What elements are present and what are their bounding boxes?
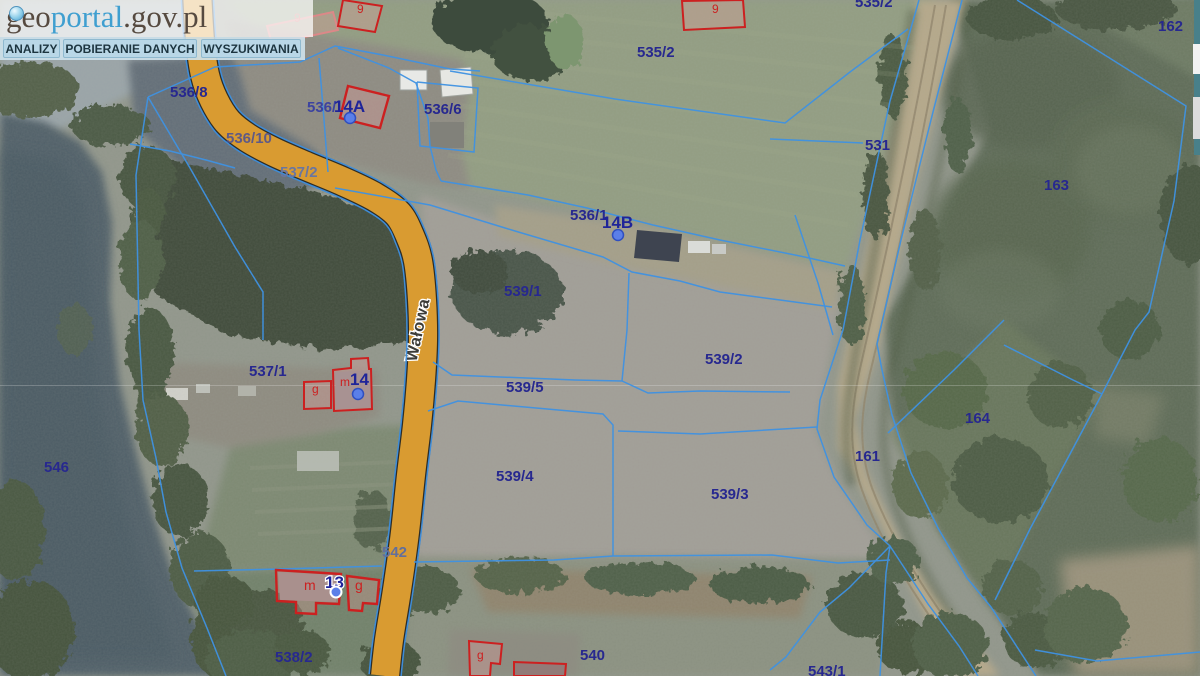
svg-text:539/1: 539/1 — [504, 283, 542, 300]
svg-text:g: g — [355, 577, 363, 593]
svg-text:161: 161 — [855, 448, 880, 465]
svg-text:164: 164 — [965, 410, 991, 427]
svg-text:537/2: 537/2 — [280, 164, 318, 181]
svg-text:m: m — [304, 577, 316, 593]
svg-text:538/2: 538/2 — [275, 649, 313, 666]
svg-text:546: 546 — [44, 459, 69, 476]
svg-text:535/2: 535/2 — [637, 44, 675, 61]
svg-text:537/1: 537/1 — [249, 363, 287, 380]
svg-text:543/1: 543/1 — [808, 663, 846, 676]
svg-text:536/6: 536/6 — [424, 101, 462, 118]
svg-text:163: 163 — [1044, 177, 1069, 194]
svg-text:539/2: 539/2 — [705, 351, 743, 368]
svg-text:536/8: 536/8 — [170, 84, 208, 101]
svg-text:m: m — [340, 375, 350, 389]
svg-text:14: 14 — [350, 370, 369, 389]
svg-text:539/5: 539/5 — [506, 379, 544, 396]
svg-text:540: 540 — [580, 647, 605, 664]
svg-text:g: g — [312, 382, 319, 396]
svg-text:535/2: 535/2 — [855, 0, 893, 11]
svg-text:536/10: 536/10 — [226, 130, 272, 147]
svg-text:9: 9 — [712, 2, 719, 16]
svg-text:536/: 536/ — [307, 99, 337, 116]
svg-text:531: 531 — [865, 137, 890, 154]
svg-text:162: 162 — [1158, 18, 1183, 35]
svg-text:542: 542 — [382, 544, 407, 561]
svg-text:9: 9 — [357, 2, 364, 16]
svg-text:g: g — [477, 648, 484, 662]
svg-text:539/4: 539/4 — [496, 468, 534, 485]
svg-text:539/3: 539/3 — [711, 486, 749, 503]
